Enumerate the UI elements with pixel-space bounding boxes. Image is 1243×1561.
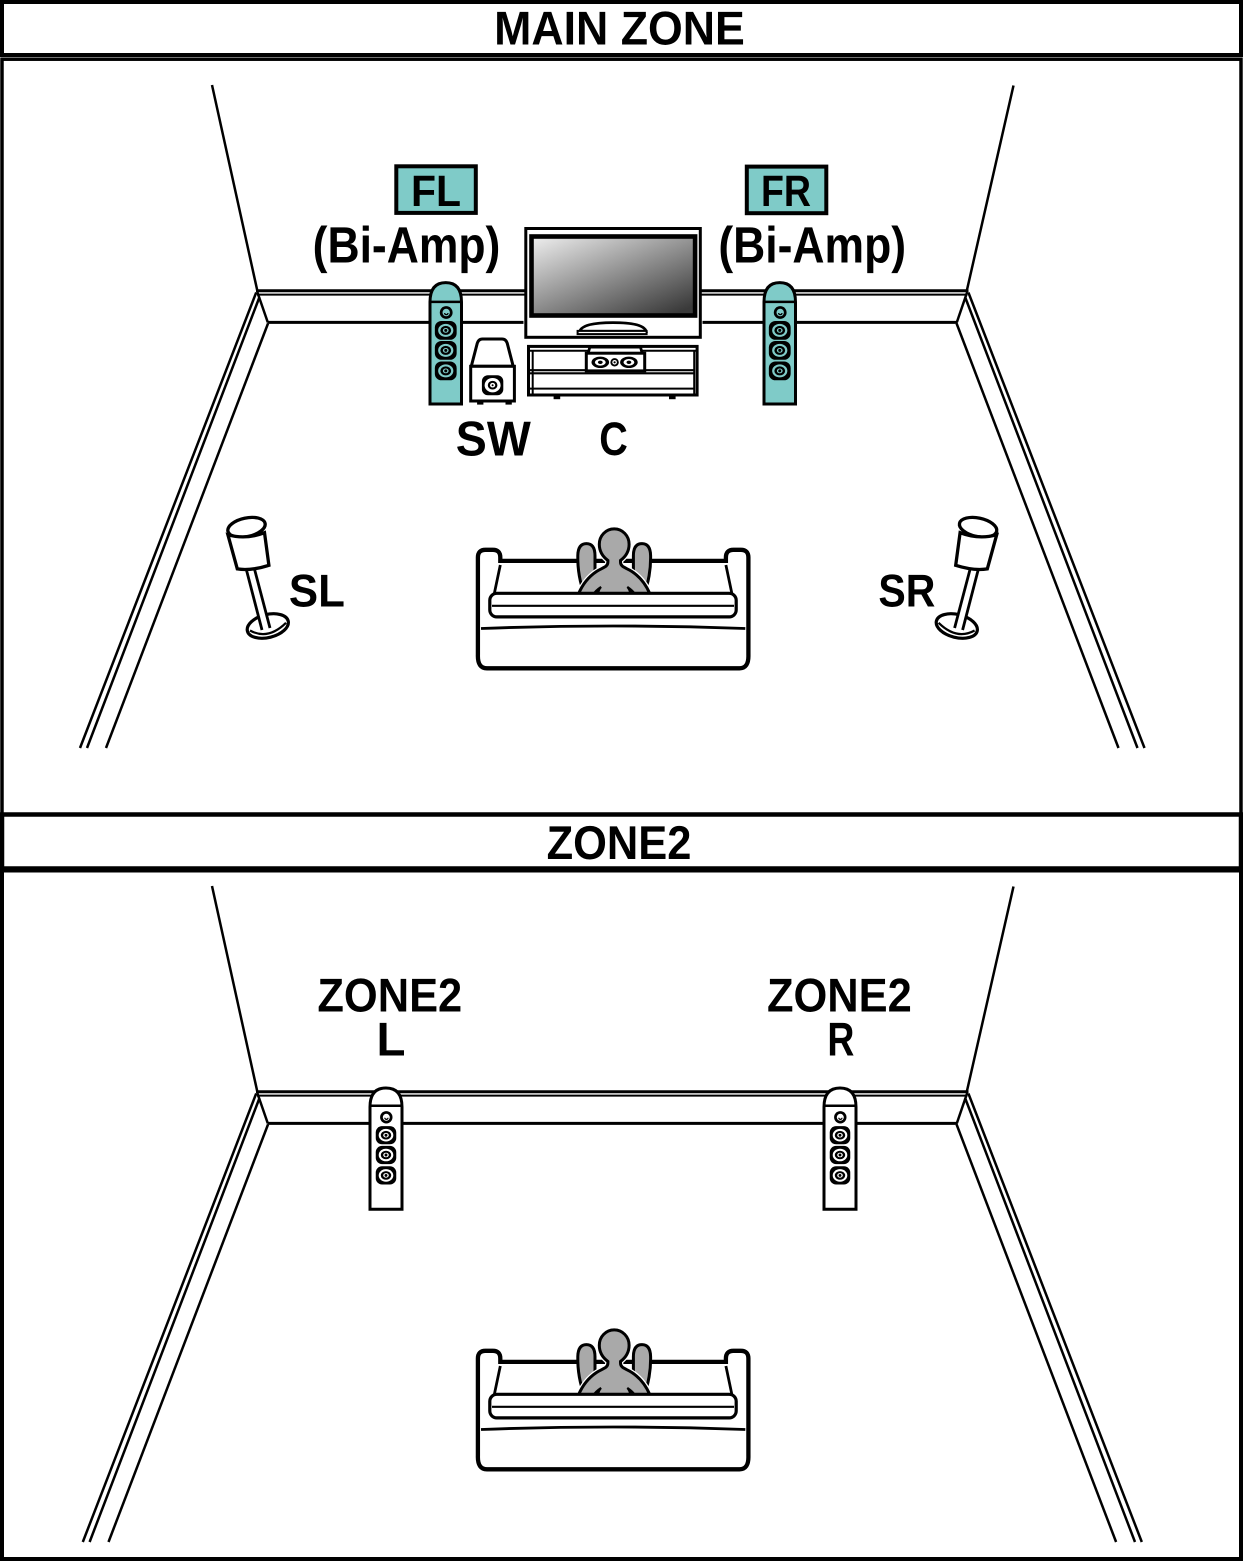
svg-text:FL: FL [411,167,461,216]
svg-text:L: L [377,1014,406,1067]
svg-text:(Bi-Amp): (Bi-Amp) [718,216,906,273]
svg-text:MAIN ZONE: MAIN ZONE [494,2,745,55]
svg-text:R: R [827,1014,854,1067]
svg-text:SL: SL [289,565,345,617]
svg-text:SR: SR [878,565,935,617]
svg-text:FR: FR [761,167,811,216]
svg-text:SW: SW [456,412,532,466]
svg-text:ZONE2: ZONE2 [547,817,692,870]
svg-text:C: C [599,412,628,465]
svg-text:(Bi-Amp): (Bi-Amp) [313,216,501,273]
